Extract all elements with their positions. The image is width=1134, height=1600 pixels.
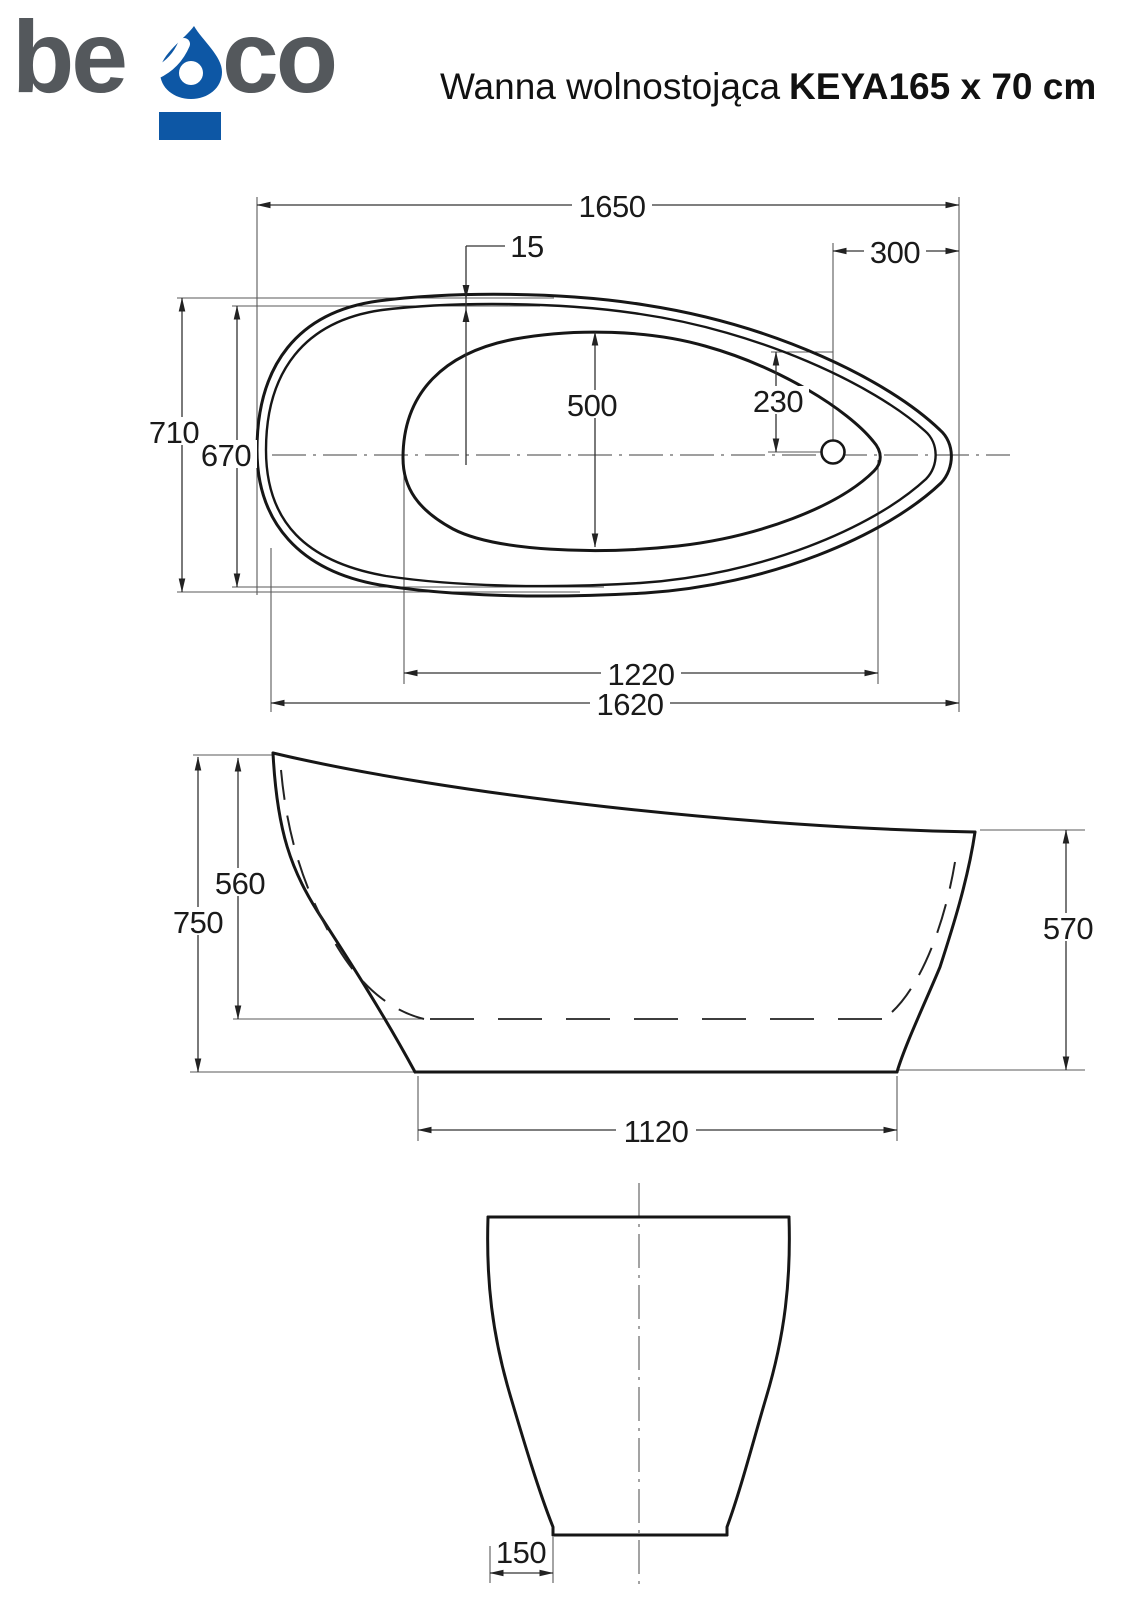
logo-text-co: co <box>222 6 335 108</box>
dim-1120: 1120 <box>418 1114 897 1149</box>
logo-blue-square <box>159 112 221 140</box>
title-regular: Wanna wolnostojąca <box>440 66 780 107</box>
technical-drawing: 1650 15 300 710 <box>0 0 1134 1600</box>
dim-label-overall-length: 1650 <box>579 189 646 224</box>
top-view: 1650 15 300 710 <box>143 189 1010 722</box>
side-view: 750 560 570 1120 <box>167 753 1099 1149</box>
side-inner-right-hidden <box>892 862 955 1012</box>
dim-1620: 1620 <box>271 687 959 722</box>
dim-label-base-offset: 150 <box>496 1535 546 1570</box>
end-view: 150 <box>488 1183 790 1590</box>
dim-label-rim-width: 15 <box>510 229 543 264</box>
besco-logo: be co <box>10 6 360 146</box>
dim-500: 500 <box>561 332 623 547</box>
header: be co Wanna wolnostojącaKEYA165 x 70 cm <box>0 0 1134 160</box>
dim-label-base-length: 1120 <box>624 1114 689 1149</box>
dim-label-height-right: 570 <box>1043 911 1093 946</box>
basin-inner-outline <box>403 332 880 550</box>
end-right-edge <box>727 1217 789 1535</box>
side-rim-edge <box>273 753 975 832</box>
water-drop-icon <box>156 24 228 100</box>
logo-text-be: be <box>12 6 125 108</box>
dim-1650: 1650 <box>257 189 959 224</box>
dim-150: 150 <box>490 1535 553 1583</box>
dim-230: 230 <box>747 352 809 452</box>
dim-label-drain-offset: 230 <box>753 384 803 419</box>
dim-750: 750 <box>167 757 229 1072</box>
dim-300: 300 <box>833 235 959 270</box>
dim-15: 15 <box>463 229 548 465</box>
side-right-edge <box>897 832 975 1072</box>
drop-hole <box>179 61 203 85</box>
dim-570: 570 <box>1037 830 1099 1070</box>
dim-560: 560 <box>209 758 271 1019</box>
dim-label-overall-width: 710 <box>149 415 199 450</box>
dim-label-lower-length: 1620 <box>597 687 664 722</box>
dim-label-basin-width: 500 <box>567 388 617 423</box>
dim-label-rim-outer-width: 670 <box>201 438 251 473</box>
side-left-edge <box>273 753 415 1072</box>
drain-hole <box>822 441 845 464</box>
side-inner-left-hidden <box>281 770 424 1019</box>
page-title: Wanna wolnostojącaKEYA165 x 70 cm <box>440 66 1096 108</box>
dim-label-height-total: 750 <box>173 905 223 940</box>
dim-670: 670 <box>195 306 257 587</box>
end-left-edge <box>488 1217 553 1535</box>
title-bold: KEYA165 x 70 cm <box>789 66 1096 107</box>
dim-label-depth: 560 <box>215 866 265 901</box>
dim-label-drain-to-end: 300 <box>870 235 920 270</box>
page: be co Wanna wolnostojącaKEYA165 x 70 cm <box>0 0 1134 1600</box>
